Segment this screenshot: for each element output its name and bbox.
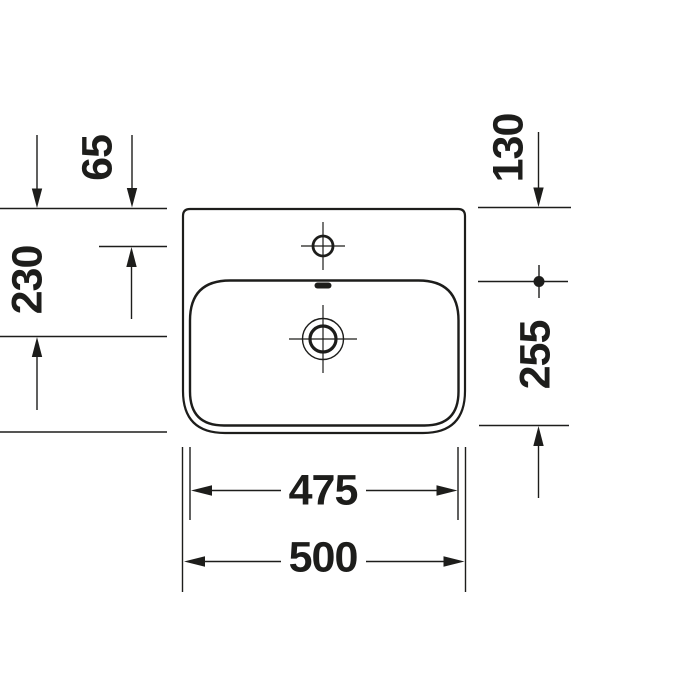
dim-label-faucet-offset: 65 — [77, 135, 120, 181]
faucet-hole — [301, 222, 345, 270]
extension-lines-right — [478, 208, 571, 426]
dimension-line-130 — [533, 132, 543, 207]
dim-label-overall-width: 500 — [289, 537, 358, 580]
drain-hole — [289, 305, 357, 373]
dim-label-bowl-width: 475 — [289, 470, 358, 513]
overflow-slot — [315, 283, 332, 289]
dimension-line-65 — [126, 135, 137, 319]
fixing-point-marker — [534, 265, 545, 298]
dim-label-drain-offset: 230 — [7, 246, 50, 315]
basin-outer-outline — [183, 209, 465, 433]
dim-label-inner-edge-offset: 130 — [488, 114, 531, 183]
washbasin-dimension-drawing: 65 230 130 255 475 500 — [0, 0, 700, 700]
technical-drawing-linework — [0, 0, 700, 700]
dimension-line-255 — [533, 426, 543, 498]
dim-label-bowl-depth: 255 — [515, 321, 558, 390]
extension-lines-left — [0, 209, 167, 433]
